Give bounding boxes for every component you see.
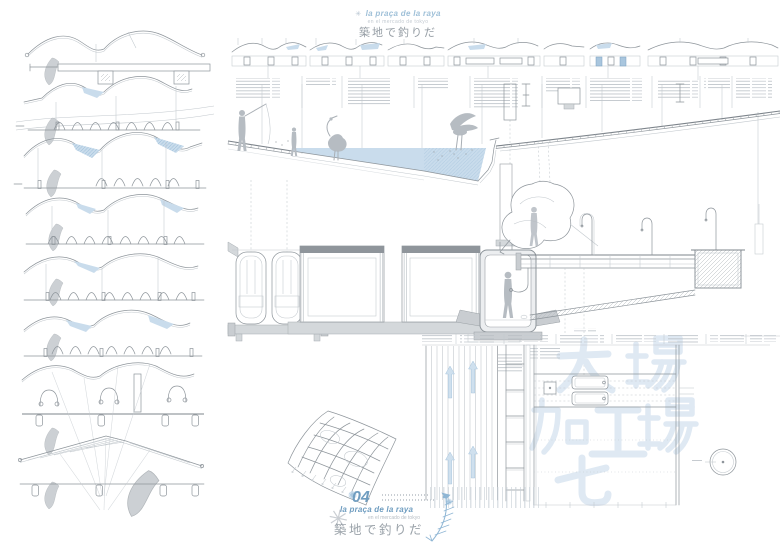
watermark-char-shichi: [558, 458, 608, 503]
circle-detail: [692, 449, 736, 475]
sheet-header: ✳ la praça de la raya en el mercado de t…: [333, 3, 463, 40]
watermark-characters: [532, 338, 696, 503]
section-row-7: [22, 363, 204, 496]
mini-section-3: [388, 39, 444, 66]
section-row-2: [16, 76, 200, 130]
roof-slope-right: [496, 111, 780, 151]
fan-lines: [52, 364, 150, 496]
project-script-title: la praça de la raya: [340, 505, 413, 514]
water-pond: [82, 87, 104, 98]
water-pond: [66, 320, 92, 332]
bird-figure: [450, 113, 478, 150]
section-row-3: [14, 132, 206, 188]
water-pond: [74, 261, 100, 273]
seat-arch: [236, 252, 266, 324]
deck-structure: [510, 253, 696, 292]
fisherman-figure: [237, 104, 270, 151]
wall-panel: [300, 246, 384, 322]
section-row-4: [26, 194, 204, 244]
main-section-panel: [228, 84, 780, 346]
contour-lines: [16, 106, 214, 130]
seat-arch: [272, 252, 302, 324]
watermark-char-ba: [628, 338, 684, 390]
mini-section-7: [648, 38, 778, 66]
water-pond: [160, 199, 184, 213]
mini-section-4: [448, 38, 540, 66]
starburst-icon: ✳: [355, 11, 361, 18]
wall-panel: [402, 246, 480, 322]
right-edge-element: [741, 204, 780, 336]
watermark-char-ka: [532, 400, 586, 452]
curl-shapes: [45, 58, 161, 521]
plan-panel: [420, 332, 780, 510]
sloping-strip: [530, 290, 695, 320]
roof-edge-piece: [228, 242, 238, 257]
mini-section-6: [590, 43, 640, 66]
watermark-char-ba: [640, 400, 696, 452]
mini-section-5: [544, 44, 584, 66]
j-hook-pipes: [580, 208, 716, 255]
roof-pond: [275, 139, 486, 181]
roof-column: [504, 84, 516, 120]
title-block: ✳ ✺ 04 la praça de la raya en el mercado…: [332, 491, 512, 549]
plan-equipment: [544, 376, 608, 405]
project-japanese-title: 築地で釣りだ: [334, 519, 424, 538]
header-script-title: la praça de la raya: [366, 9, 441, 18]
decking-plan: [426, 346, 498, 500]
water-pond: [148, 315, 174, 329]
fish-skeleton-icon: [422, 491, 462, 543]
hatched-box: [691, 250, 745, 288]
mini-section-1: [232, 38, 306, 66]
water-pond: [76, 203, 96, 214]
flow-arrows: [446, 361, 478, 484]
water-pond: [72, 137, 184, 158]
mini-section-2: [310, 38, 384, 66]
watermark-char-kou: [592, 410, 644, 454]
organic-pod: [500, 140, 598, 254]
drawing-sheet: ✳ la praça de la raya en el mercado de t…: [0, 0, 780, 551]
left-sections-panel: [0, 22, 230, 512]
small-figure: [291, 128, 297, 156]
